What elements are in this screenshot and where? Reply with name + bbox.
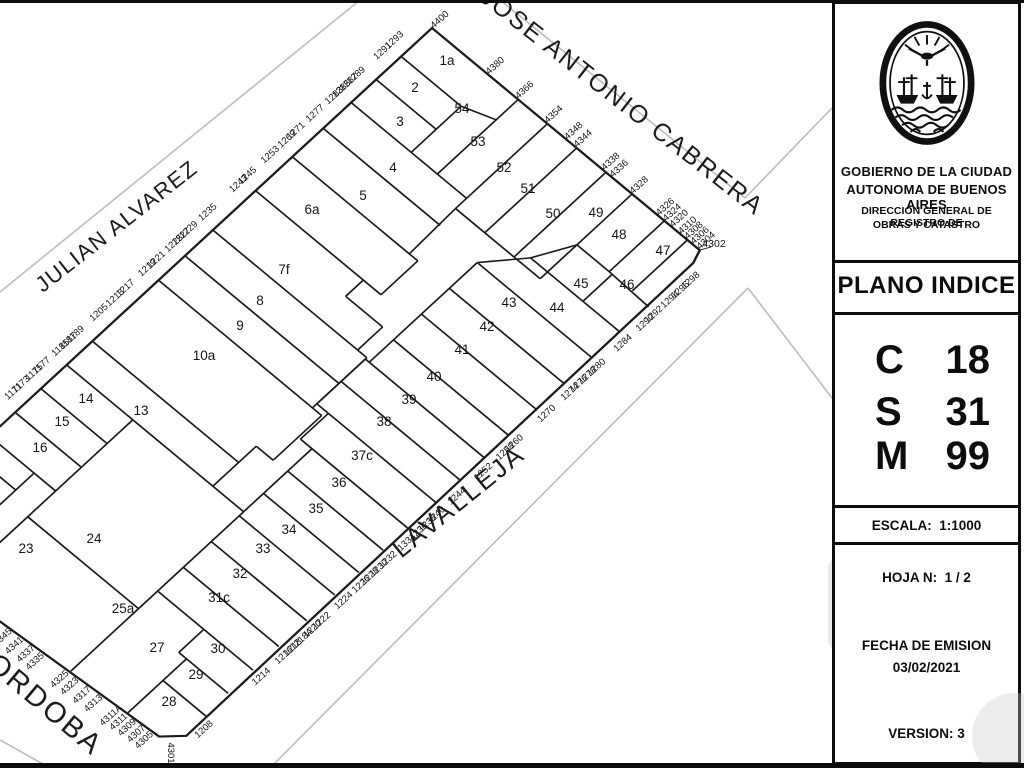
lot-number: 44 <box>549 300 565 315</box>
cadastral-key-m: M <box>875 434 908 479</box>
sheet-title: PLANO INDICE <box>835 272 1018 300</box>
cadastral-value-c: 18 <box>946 338 991 383</box>
address-number: 1208 <box>192 718 215 740</box>
lot-number: 25a <box>112 601 135 616</box>
parcel-line <box>15 412 81 467</box>
lot-number: 31c <box>208 590 230 605</box>
parcel-line <box>71 449 312 671</box>
parcel-line <box>179 629 204 652</box>
emission-label: FECHA DE EMISION <box>835 638 1018 653</box>
scale-value: 1:1000 <box>939 518 981 533</box>
lot-number: 53 <box>470 134 485 149</box>
lot-number: 28 <box>161 694 176 709</box>
lot-number: 9 <box>236 318 244 333</box>
scan-edge-top <box>0 0 1024 3</box>
street-edge-line <box>0 0 360 292</box>
lot-number: 33 <box>255 541 270 556</box>
lot-number: 38 <box>376 414 391 429</box>
street-edge-line <box>748 288 832 398</box>
lot-number: 51 <box>520 181 535 196</box>
lot-number: 16 <box>32 440 47 455</box>
parcel-line <box>346 296 383 327</box>
street-edge-line <box>745 108 832 198</box>
lot-number: 2 <box>411 80 419 95</box>
parcel-line <box>67 365 244 512</box>
cadastral-key-s: S <box>875 390 902 435</box>
lot-number: 27 <box>149 640 164 655</box>
address-number: 4301 <box>165 742 176 763</box>
address-number: 1235 <box>196 201 219 223</box>
lot-number: 13 <box>133 403 148 418</box>
lot-number: 32 <box>232 566 247 581</box>
address-number: 1253 <box>259 144 282 166</box>
block-parcels <box>0 28 707 764</box>
lot-number: 45 <box>573 276 588 291</box>
scale-row: ESCALA: 1:1000 <box>835 518 1018 533</box>
divider <box>835 542 1018 545</box>
parcel-line <box>477 237 530 284</box>
lot-number: 1a <box>439 53 455 68</box>
lot-number: 46 <box>619 277 634 292</box>
lot-number: 35 <box>308 501 323 516</box>
parcel-line <box>256 446 273 460</box>
cadastral-value-s: 31 <box>946 390 991 435</box>
buenos-aires-crest-icon <box>879 20 975 146</box>
address-number: 4366 <box>513 79 536 101</box>
lot-number: 7f <box>278 262 290 277</box>
lot-number: 37c <box>351 448 373 463</box>
cadastral-value-m: 99 <box>946 434 991 479</box>
address-number: 4380 <box>484 55 507 77</box>
lot-number: 48 <box>611 227 626 242</box>
lot-number: 52 <box>496 160 511 175</box>
lot-number: 24 <box>86 531 102 546</box>
lot-number: 29 <box>188 667 203 682</box>
block-outline <box>0 28 707 764</box>
parcel-line <box>185 256 339 384</box>
parcel-line <box>300 413 328 439</box>
lot-number: 30 <box>210 641 225 656</box>
street-edge-line <box>270 288 748 768</box>
address-number: 4400 <box>428 9 451 31</box>
lot-number: 47 <box>655 243 670 258</box>
lot-number: 6a <box>304 202 320 217</box>
lot-number: 41 <box>454 342 469 357</box>
cadastral-map: 1293129112891287128512831277127112691253… <box>0 0 832 768</box>
street-name: JOSE ANTONIO CABRERA <box>475 0 770 221</box>
gov-name-line1: GOBIERNO DE LA CIUDAD <box>835 164 1018 179</box>
divider <box>835 505 1018 508</box>
address-number: 4328 <box>628 174 651 196</box>
emission-date: 03/02/2021 <box>835 660 1018 675</box>
lot-number: 3 <box>396 114 404 129</box>
lot-number: 5 <box>359 188 367 203</box>
parcel-line <box>0 453 16 490</box>
parcel-line <box>213 446 256 486</box>
street-name: LAVALLEJA <box>386 438 531 563</box>
lot-number: 4 <box>389 160 397 175</box>
version-label: VERSION: <box>888 726 953 741</box>
lot-number: 15 <box>54 414 69 429</box>
scan-edge-bottom <box>0 763 1024 768</box>
lot-number: 14 <box>78 391 94 406</box>
lot-number: 23 <box>18 541 33 556</box>
parcel-line <box>273 416 322 461</box>
department-line2: OBRAS Y CATASTRO <box>835 219 1018 231</box>
plano-indice-sheet: 1293129112891287128512831277127112691253… <box>0 0 1024 768</box>
address-number: 1277 <box>304 102 327 124</box>
sheet-number-row: HOJA N: 1 / 2 <box>835 570 1018 585</box>
parcel-line <box>158 591 253 670</box>
cadastral-key-c: C <box>875 338 904 383</box>
title-block-panel: GOBIERNO DE LA CIUDAD AUTONOMA DE BUENOS… <box>832 1 1021 765</box>
lot-number: 36 <box>331 475 346 490</box>
address-number: 4302 <box>702 238 726 250</box>
parcel-line <box>358 327 383 350</box>
lot-number: 50 <box>545 206 560 221</box>
lot-number: 10a <box>193 348 216 363</box>
street-name: JULIAN ALVAREZ <box>30 155 202 297</box>
parcel-line <box>408 208 457 253</box>
sheet-value: 1 / 2 <box>945 570 971 585</box>
lot-number: 39 <box>401 392 416 407</box>
lot-number: 8 <box>256 293 264 308</box>
divider <box>835 260 1018 263</box>
parcel-line <box>393 340 508 435</box>
address-number: 1224 <box>332 590 355 612</box>
address-number: 4354 <box>542 103 565 125</box>
parcel-line <box>213 230 367 358</box>
parcel-line <box>346 280 364 296</box>
parcel-line <box>577 245 609 272</box>
version-value: 3 <box>957 726 965 741</box>
parcel-line <box>0 420 133 587</box>
parcel-line <box>92 341 238 462</box>
parcel-line <box>28 517 139 609</box>
lot-number: 40 <box>426 369 441 384</box>
parcel-line <box>381 261 418 295</box>
lot-number: 42 <box>479 319 494 334</box>
parcel-line <box>127 659 187 714</box>
parcel-line <box>376 80 436 130</box>
lot-number: 54 <box>454 101 470 116</box>
lot-number: 49 <box>588 205 603 220</box>
scale-label: ESCALA: <box>872 518 932 533</box>
parcel-line <box>341 381 460 479</box>
lot-number: 34 <box>281 522 297 537</box>
sheet-label: HOJA N: <box>882 570 937 585</box>
address-number: 1214 <box>250 665 273 687</box>
divider <box>835 312 1018 315</box>
parcel-line <box>41 389 107 444</box>
lot-number: 43 <box>501 295 516 310</box>
